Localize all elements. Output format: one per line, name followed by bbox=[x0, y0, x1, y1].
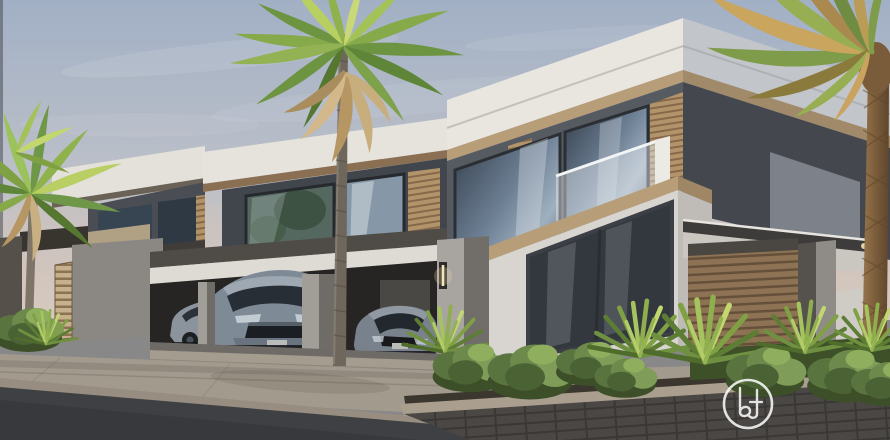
pillar-shade bbox=[207, 282, 215, 346]
sconce-glow bbox=[434, 267, 452, 285]
pillar bbox=[198, 282, 207, 346]
pillar bbox=[302, 274, 319, 352]
headlight bbox=[372, 336, 384, 342]
boundary-wall bbox=[72, 238, 163, 342]
balcony-end-panel bbox=[655, 136, 670, 186]
grille-chrome bbox=[248, 322, 306, 326]
render-image bbox=[0, 0, 890, 440]
